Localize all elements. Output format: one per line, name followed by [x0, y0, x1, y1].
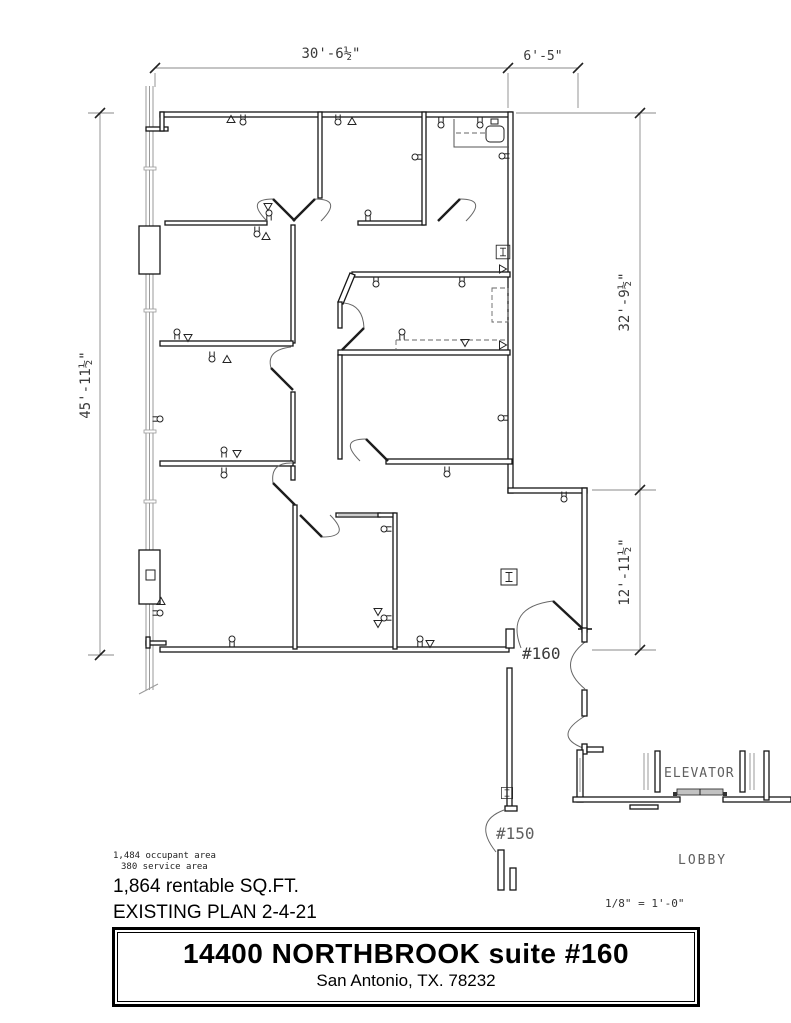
column-pier: [139, 550, 160, 604]
dim-top-right: 6'-5": [523, 49, 562, 64]
lobby-label: LOBBY: [678, 853, 727, 868]
title-block: 14400 NORTHBROOK suite #160 San Antonio,…: [112, 927, 700, 1007]
sheet-title: 14400 NORTHBROOK suite #160: [118, 938, 694, 970]
suite-walls: [146, 112, 592, 652]
dim-right-lower: 12'-11½": [617, 538, 633, 605]
thermostat-icon: [501, 569, 517, 585]
area-notes: 1,484 occupant area 380 service area 1,8…: [113, 851, 317, 925]
lobby-walls: [498, 628, 791, 890]
drawing-sheet: 30'-6½" 6'-5" 45'-11½" 32'-9½" 12'-11½" …: [0, 0, 791, 1023]
suite-number-label: #160: [522, 644, 561, 663]
dim-left: 45'-11½": [78, 351, 94, 418]
column-pier: [139, 226, 160, 274]
electrical-symbols: [153, 115, 568, 799]
sheet-subtitle: San Antonio, TX. 78232: [118, 971, 694, 991]
adjacent-suite-label: #150: [496, 824, 535, 843]
dimension-lines: [88, 63, 656, 660]
sink-icon: [486, 119, 504, 142]
rentable-area-note: 1,864 rentable SQ.FT.: [113, 875, 317, 899]
interior-walls: [160, 112, 512, 649]
occupant-area-note: 1,484 occupant area: [113, 851, 317, 862]
elevator-door: [673, 789, 727, 796]
scale-note: 1/8" = 1'-0": [605, 897, 684, 910]
plan-title-note: EXISTING PLAN 2-4-21: [113, 901, 317, 925]
dim-top: 30'-6½": [301, 46, 360, 62]
service-area-note: 380 service area: [113, 862, 317, 873]
refrigerator: [492, 288, 508, 322]
window-wall: [139, 86, 160, 694]
annotations: 30'-6½" 6'-5" 45'-11½" 32'-9½" 12'-11½" …: [78, 46, 735, 868]
elevator-label: ELEVATOR: [664, 766, 735, 781]
casework: [396, 119, 509, 350]
title-block-inner: 14400 NORTHBROOK suite #160 San Antonio,…: [117, 932, 695, 1002]
doors: [257, 199, 585, 852]
dim-right-upper: 32'-9½": [617, 272, 633, 331]
